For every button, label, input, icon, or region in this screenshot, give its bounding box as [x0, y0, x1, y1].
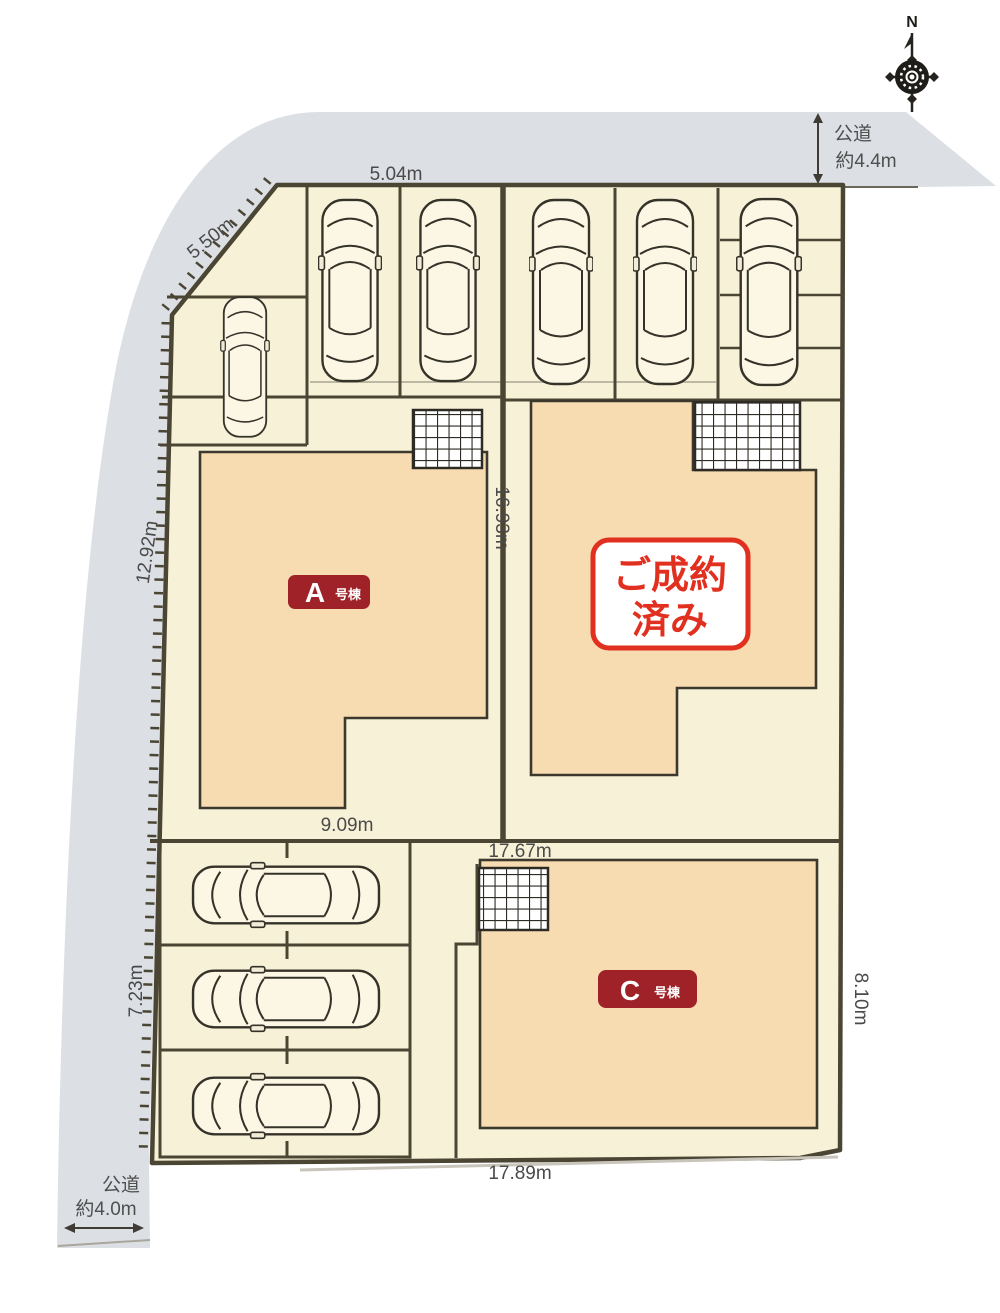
building-c-suffix: 号棟: [654, 985, 681, 1000]
car-top-view-icon: [737, 199, 802, 385]
sold-stamp: ご成約 済み: [593, 540, 748, 648]
building-a-suffix: 号棟: [335, 587, 362, 602]
car-top-view-icon: [633, 200, 697, 384]
site-plan-drawing: A 号棟 C 号棟 ご成約 済み 5.04m 5.50m 12.92m 16.9…: [0, 0, 1000, 1313]
sold-stamp-line1: ご成約: [613, 555, 727, 597]
car-top-view-icon: [417, 200, 480, 381]
dimension-bottom-width: 17.89m: [488, 1163, 551, 1184]
road-bottom-width: 約4.0m: [75, 1198, 136, 1220]
car-top-view-icon: [221, 297, 270, 436]
car-top-view-icon: [529, 200, 593, 384]
building-a-letter: A: [305, 577, 325, 608]
building-c-label: C 号棟: [598, 970, 697, 1008]
road-top-name: 公道: [834, 123, 872, 145]
building-a-label: A 号棟: [288, 575, 370, 609]
car-top-view-icon: [193, 967, 379, 1032]
porch-grid-a: [413, 410, 482, 468]
dimension-center: 16.93m: [491, 486, 512, 549]
road-bottom-name: 公道: [102, 1174, 140, 1196]
dimension-a-plot-width: 9.09m: [321, 815, 374, 836]
site-plan-page: A 号棟 C 号棟 ご成約 済み 5.04m 5.50m 12.92m 16.9…: [0, 0, 1000, 1313]
dimension-right-lower: 8.10m: [850, 973, 871, 1026]
porch-grid-c: [479, 868, 548, 930]
dimension-left-lower: 7.23m: [126, 965, 147, 1018]
dimension-top-width: 5.04m: [370, 164, 423, 185]
compass-north-label: N: [906, 14, 918, 31]
car-top-view-icon: [193, 863, 379, 928]
road-top-width: 約4.4m: [835, 150, 896, 172]
car-top-view-icon: [319, 200, 382, 381]
parking-cars-bottom: [193, 863, 379, 1139]
sold-stamp-line2: 済み: [632, 600, 708, 642]
car-top-view-icon: [193, 1074, 379, 1139]
porch-grid-b: [695, 402, 800, 470]
building-c-letter: C: [620, 975, 640, 1006]
dimension-c-top-width: 17.67m: [488, 841, 551, 862]
